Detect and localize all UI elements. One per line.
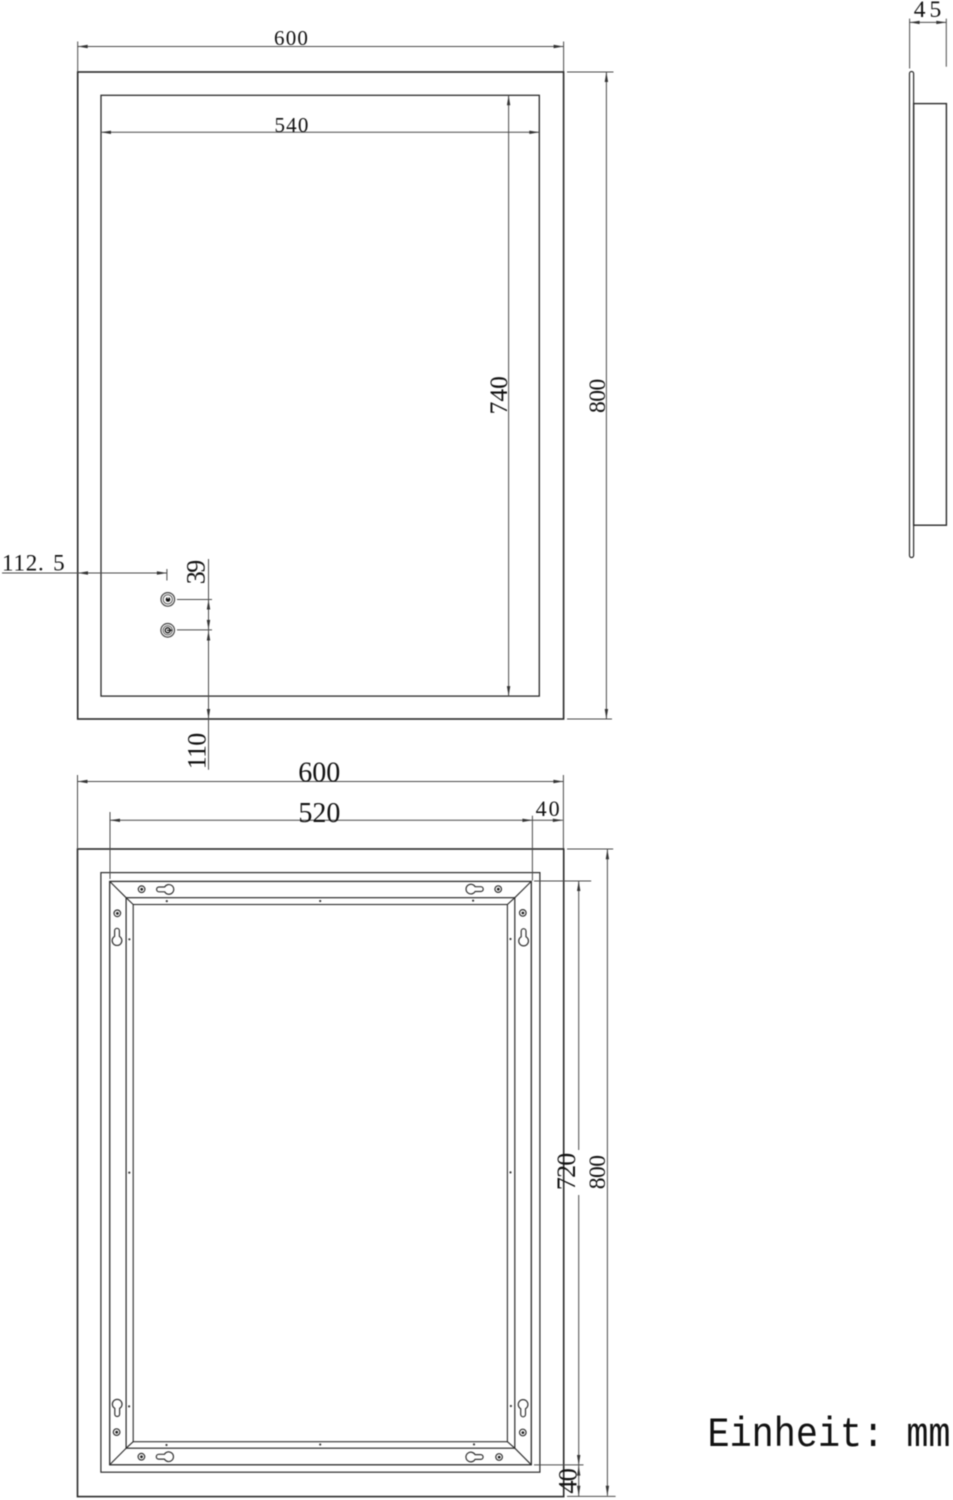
svg-text:112. 5: 112. 5 xyxy=(2,551,65,576)
svg-text:740: 740 xyxy=(484,376,513,414)
svg-text:520: 520 xyxy=(298,798,340,829)
svg-text:800: 800 xyxy=(585,1156,611,1190)
svg-text:600: 600 xyxy=(274,26,309,50)
svg-text:540: 540 xyxy=(274,113,309,137)
svg-text:800: 800 xyxy=(585,379,611,413)
svg-text:Einheit: mm: Einheit: mm xyxy=(708,1411,951,1459)
svg-text:39: 39 xyxy=(182,561,211,585)
svg-text:110: 110 xyxy=(182,733,211,769)
svg-text:40: 40 xyxy=(536,796,562,821)
svg-text:45: 45 xyxy=(914,0,946,23)
svg-text:720: 720 xyxy=(552,1153,581,1190)
svg-text:40: 40 xyxy=(552,1468,582,1493)
svg-text:600: 600 xyxy=(298,757,340,788)
